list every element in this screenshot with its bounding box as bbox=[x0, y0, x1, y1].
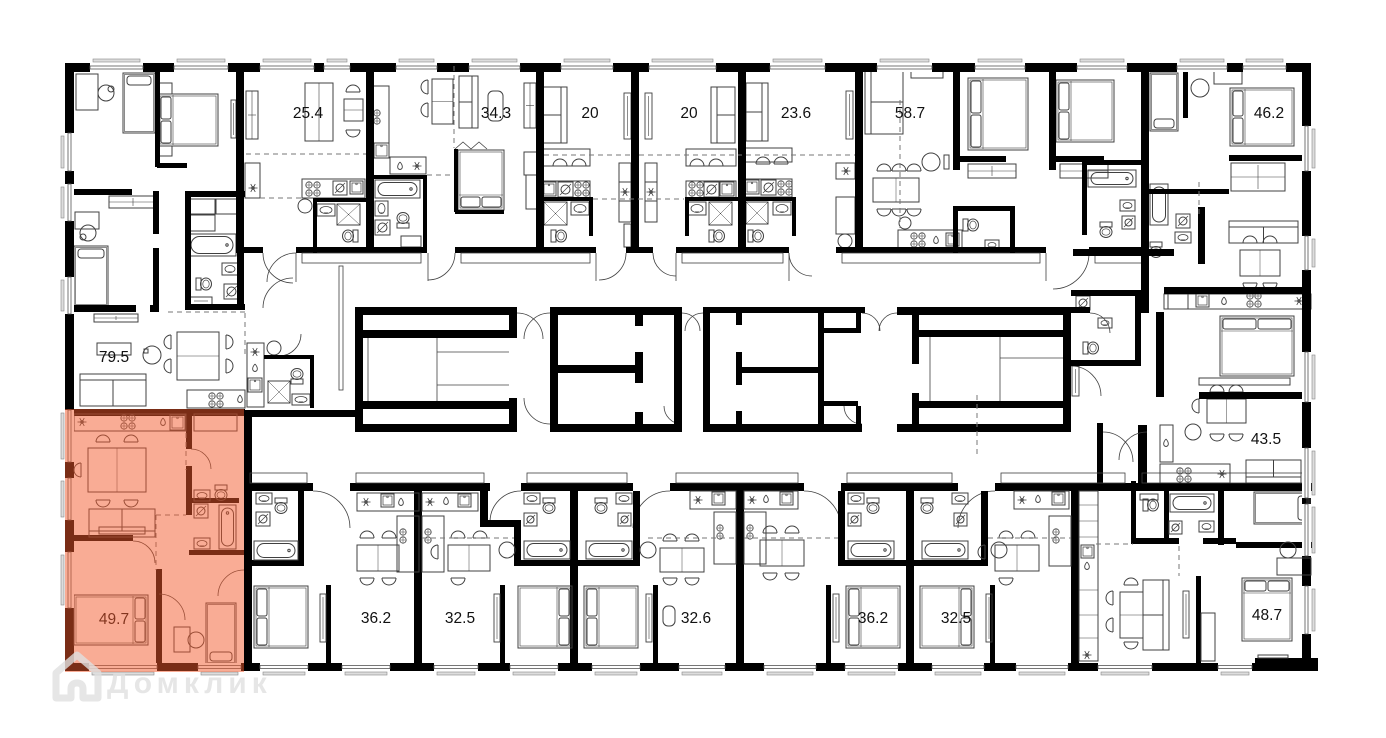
svg-text:48.7: 48.7 bbox=[1252, 607, 1282, 624]
svg-text:32.6: 32.6 bbox=[681, 610, 711, 627]
svg-text:46.2: 46.2 bbox=[1254, 105, 1284, 122]
svg-text:58.7: 58.7 bbox=[895, 105, 925, 122]
svg-text:Домклик: Домклик bbox=[107, 667, 272, 700]
svg-text:79.5: 79.5 bbox=[99, 349, 129, 366]
svg-text:32.5: 32.5 bbox=[445, 610, 475, 627]
svg-text:34.3: 34.3 bbox=[481, 105, 511, 122]
svg-text:43.5: 43.5 bbox=[1251, 431, 1281, 448]
svg-text:25.4: 25.4 bbox=[293, 105, 324, 122]
svg-text:23.6: 23.6 bbox=[781, 105, 811, 122]
svg-text:36.2: 36.2 bbox=[361, 610, 391, 627]
svg-text:36.2: 36.2 bbox=[858, 610, 888, 627]
svg-text:20: 20 bbox=[680, 105, 698, 122]
svg-text:32.5: 32.5 bbox=[941, 610, 971, 627]
svg-text:20: 20 bbox=[581, 105, 599, 122]
